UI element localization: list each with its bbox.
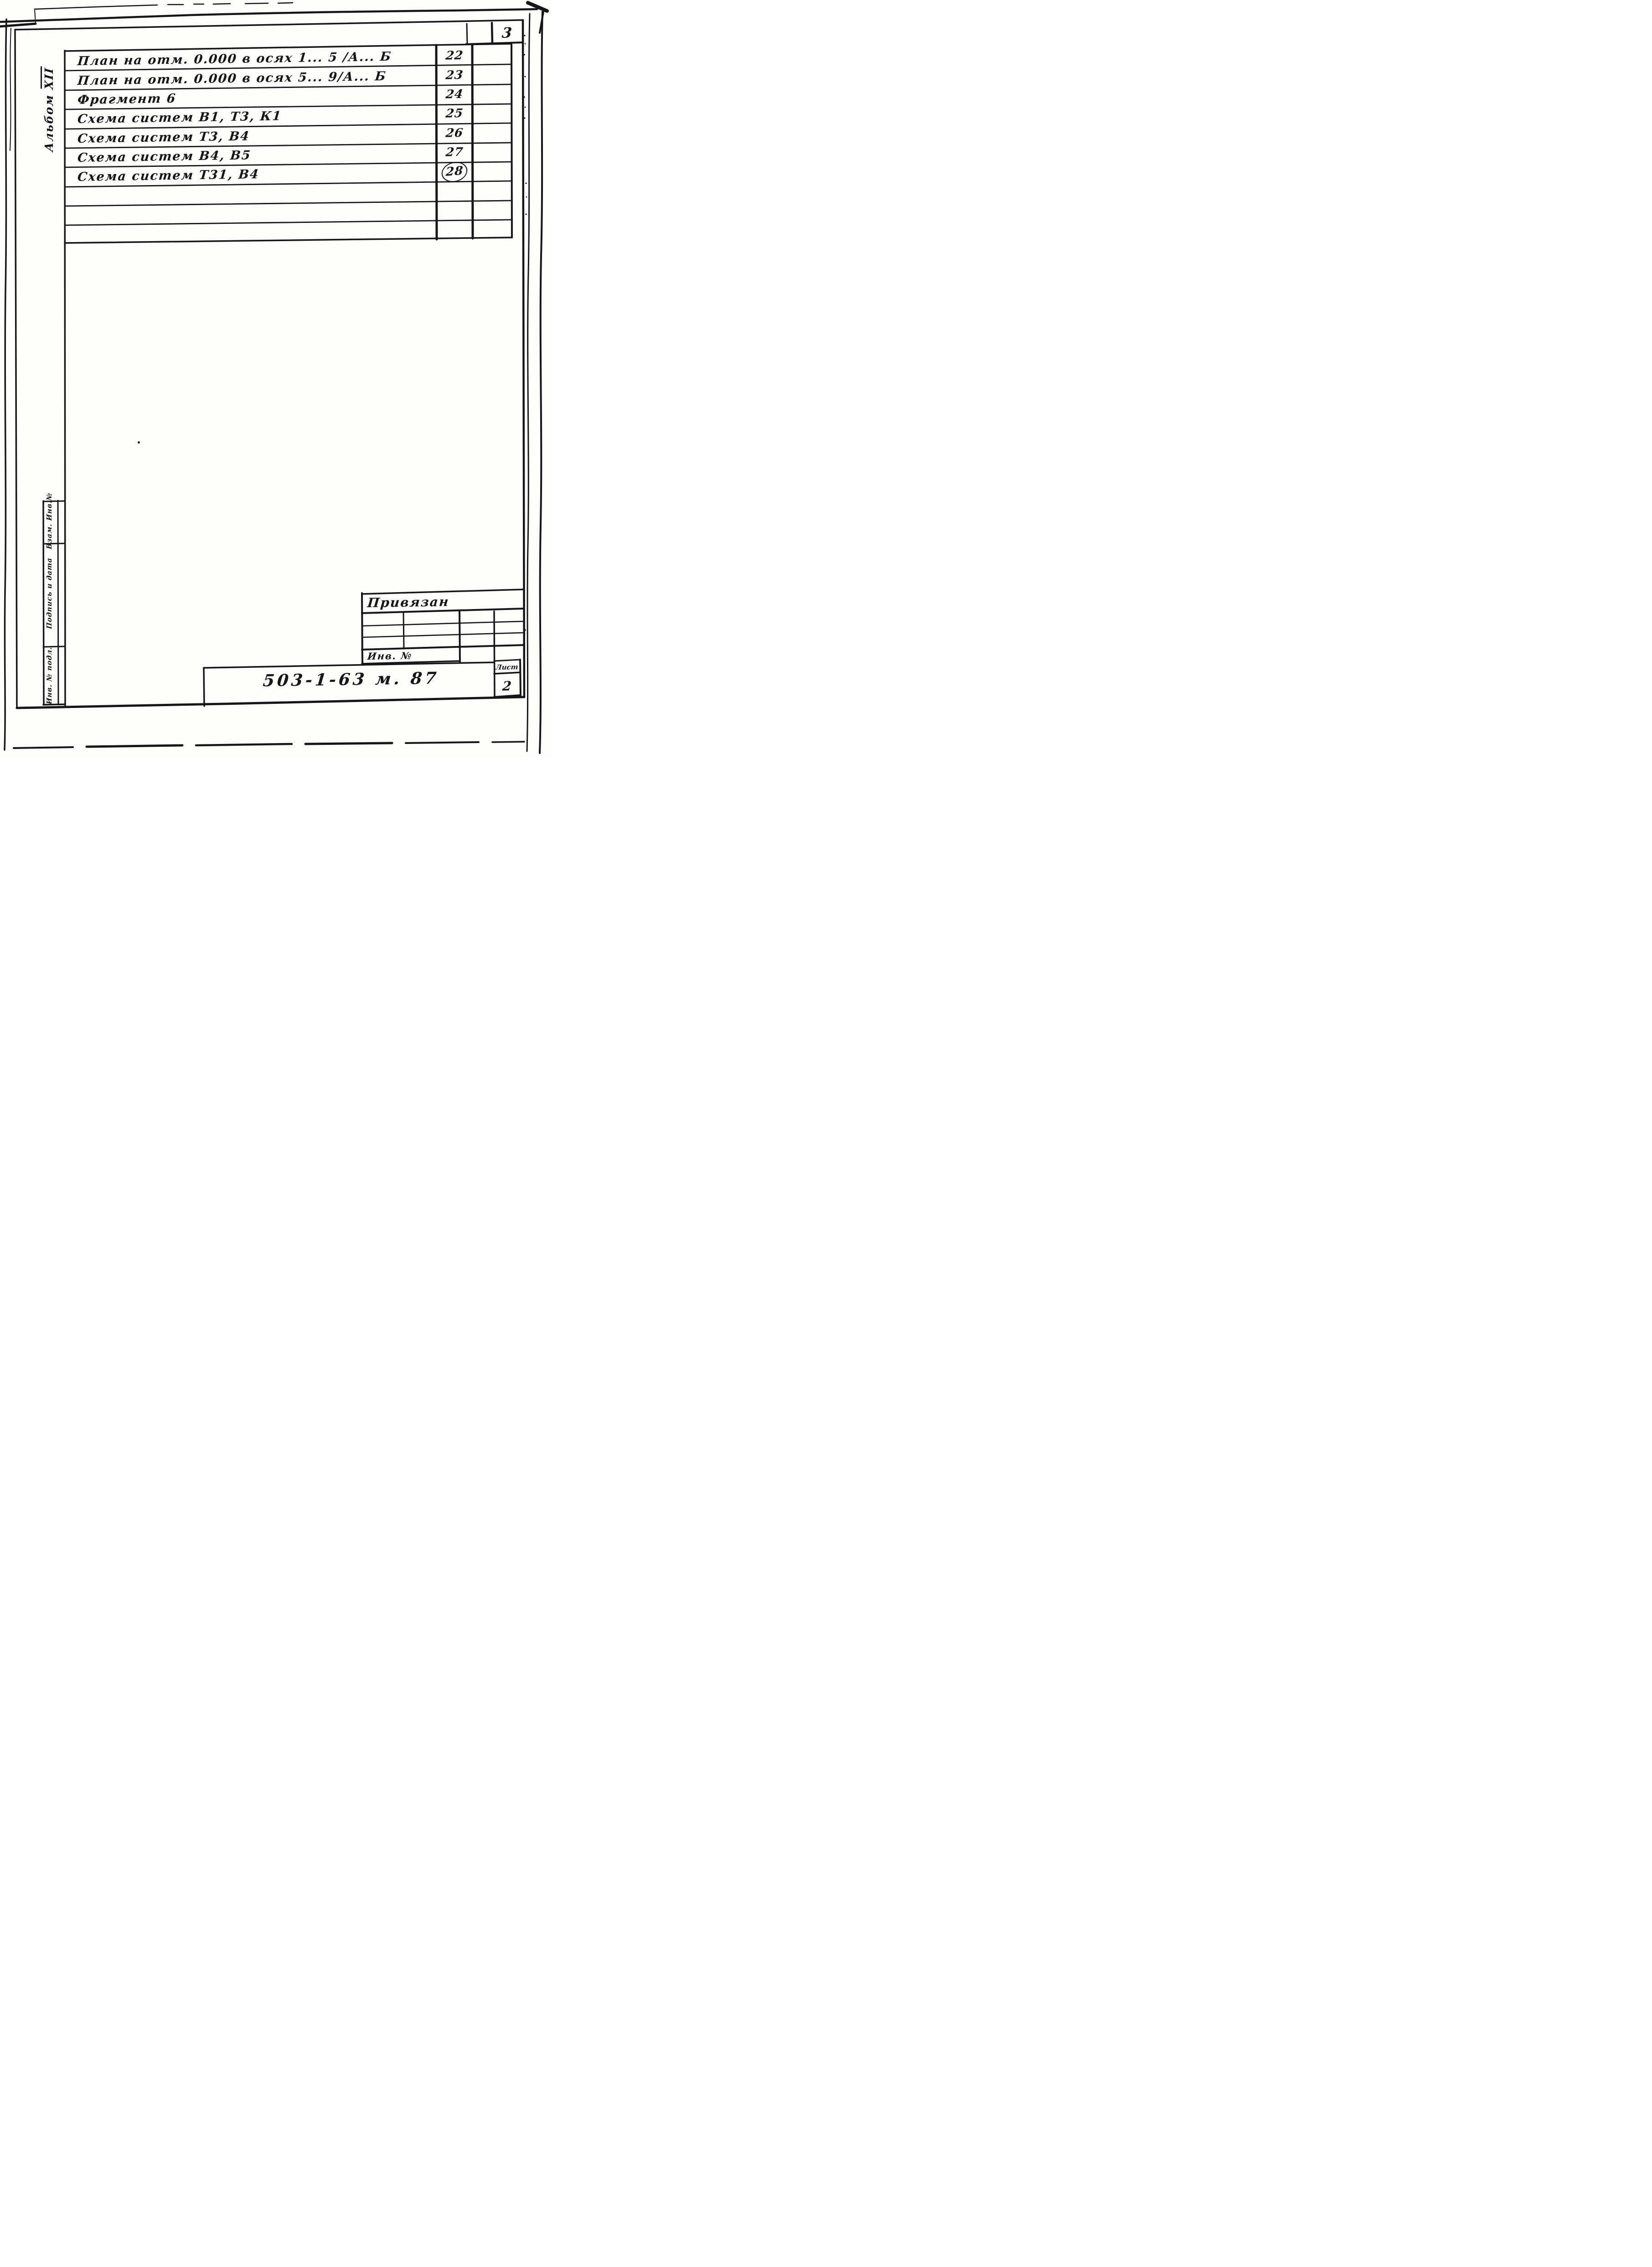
page-number: 3 xyxy=(491,23,522,43)
album-word: Альбом xyxy=(42,94,56,152)
table-row-sheet-number-circled: 28 xyxy=(434,161,475,182)
ink-speck xyxy=(138,441,140,444)
table-row-title: Схема систем Т3, В4 xyxy=(77,128,250,148)
table-row-sheet-number: 25 xyxy=(434,104,475,123)
table-row-sheet-number: 26 xyxy=(434,124,475,142)
table-row-sheet-number: 24 xyxy=(434,85,475,103)
title-block-status: Привязан xyxy=(367,594,450,610)
album-roman-numeral: XII xyxy=(41,67,56,90)
circle-mark: 28 xyxy=(441,161,468,183)
stamp-cell-inv-podl: Инв. № подл. xyxy=(45,646,56,706)
document-number: 503-1-63 м. 87 xyxy=(213,668,489,691)
scanned-drawing-sheet: 3 Альбом XII План на отм. 0.000 в осях 1… xyxy=(0,0,551,756)
sheet-label: Лист xyxy=(493,661,521,673)
table-row-sheet-number: 27 xyxy=(434,143,475,161)
album-caption: Альбом XII xyxy=(42,50,56,170)
table-row-title: Схема систем Т31, В4 xyxy=(77,166,260,186)
table-row-title: Схема систем В1, Т3, К1 xyxy=(77,108,282,128)
stamp-cell-podpis-data: Подпись и дата xyxy=(45,560,56,630)
sheet-number: 2 xyxy=(492,677,521,695)
table-row-sheet-number: 22 xyxy=(434,46,475,65)
stamp-cell-vzam-inv: Взам. Инв.№ xyxy=(45,494,56,550)
table-row-title: Фрагмент 6 xyxy=(77,90,177,109)
page-number-value: 3 xyxy=(501,25,513,41)
table-row-sheet-number: 23 xyxy=(434,66,475,84)
table-row-title: Схема систем В4, В5 xyxy=(77,147,252,167)
inventory-number-label: Инв. № xyxy=(367,650,413,662)
